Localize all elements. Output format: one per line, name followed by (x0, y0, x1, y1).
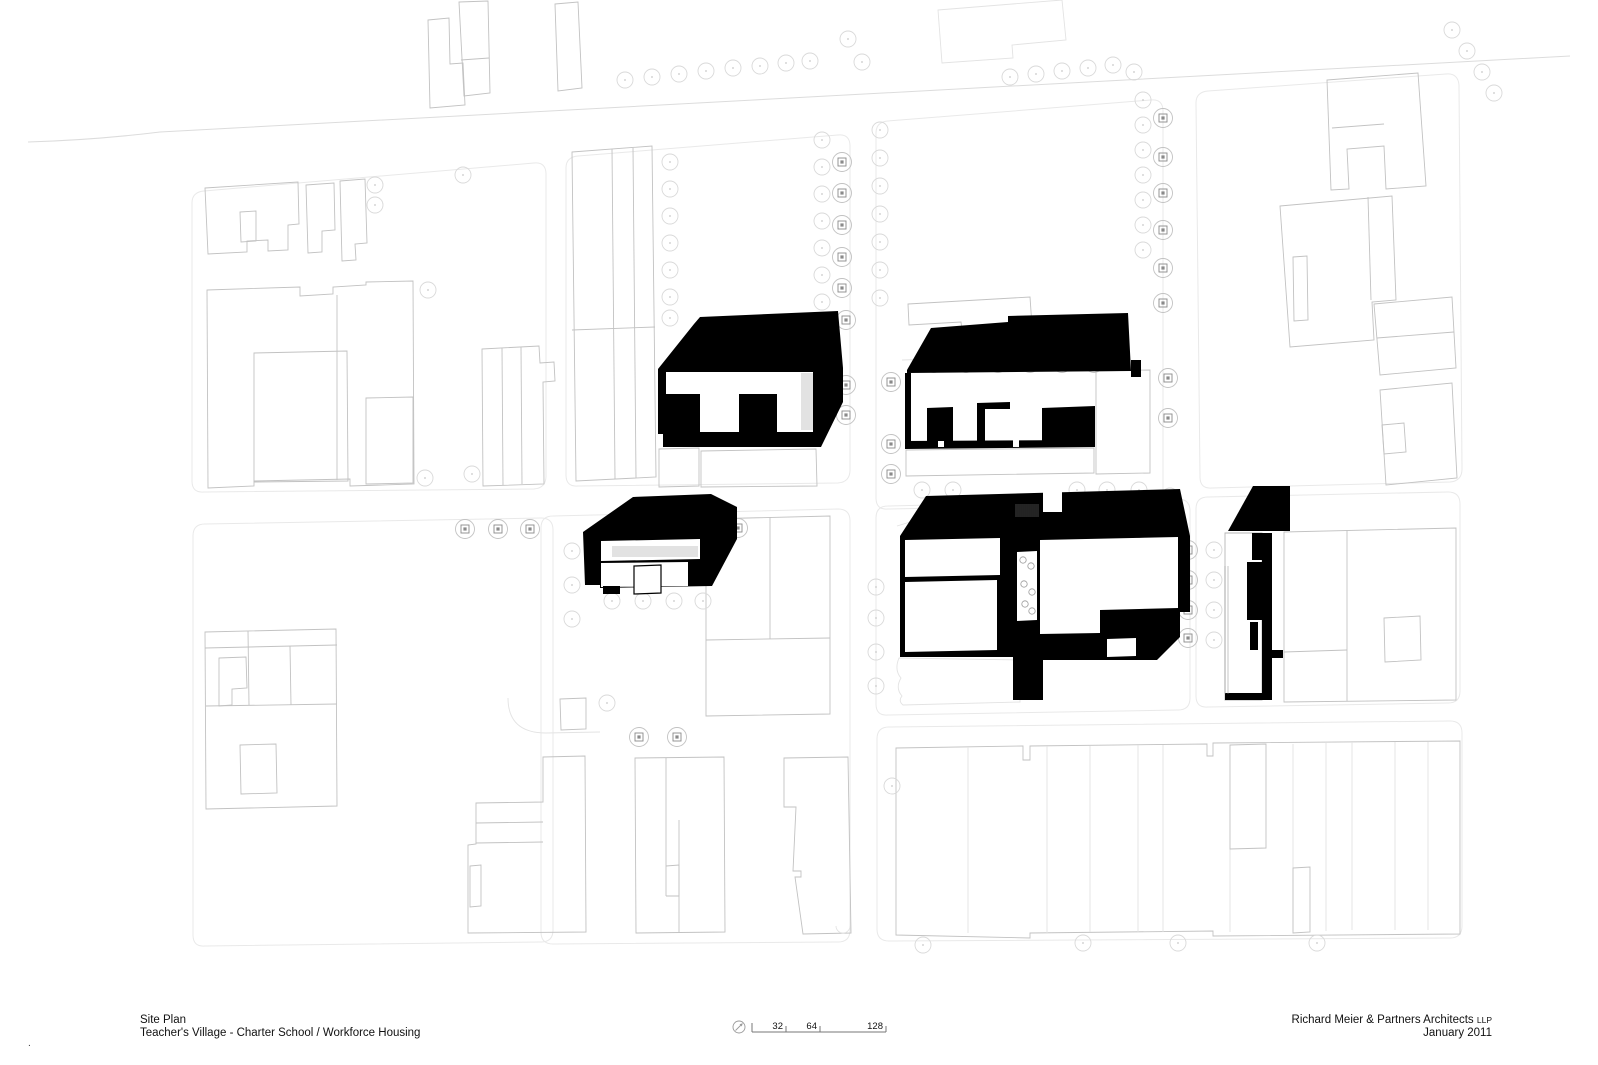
project-tree-trunk (1161, 155, 1164, 158)
title-block: Site Plan Teacher's Village - Charter Sc… (140, 1014, 420, 1040)
project-tree-trunk (844, 413, 847, 416)
street-tree-center (678, 73, 680, 75)
scale-label: 128 (867, 1021, 883, 1032)
street-tree-center (821, 193, 823, 195)
proposed-building-4 (900, 489, 1190, 700)
street-tree-center (1082, 942, 1084, 944)
project-tree-trunk (1186, 636, 1189, 639)
top-road (28, 56, 1570, 142)
project-tree-trunk (840, 160, 843, 163)
project-tree-trunk (1161, 116, 1164, 119)
context-nw-5-div2 (521, 347, 522, 484)
street-tree-center (1087, 67, 1089, 69)
street-tree-center (1316, 942, 1318, 944)
context-rowhouse-3-arc (836, 926, 850, 933)
street-tree-center (821, 139, 823, 141)
street-tree-center (879, 241, 881, 243)
street-tree-center (1142, 99, 1144, 101)
context-rowhouse-1-inner (470, 865, 481, 907)
proposed-building-5-mass (1252, 533, 1262, 560)
project-tree-trunk (1161, 228, 1164, 231)
proposed-building-2-mass (905, 440, 1095, 449)
context-ne-4 (1380, 383, 1457, 485)
proposed-building-5-mass (1250, 622, 1258, 650)
context-e-1-inner (1384, 616, 1421, 662)
project-tree-trunk (637, 735, 640, 738)
context-strips-n-div2 (633, 148, 636, 478)
context-ne-2-inner (1293, 256, 1308, 321)
context-nw-4-court (254, 351, 348, 482)
street-tree-center (891, 785, 893, 787)
project-tree-trunk (675, 735, 678, 738)
project-tree-trunk (889, 380, 892, 383)
project-tree-trunk (528, 527, 531, 530)
proposed-building-4-courtyard-tree-icon (1022, 601, 1028, 607)
street-tree-center (875, 685, 877, 687)
proposed-building-3-court (634, 565, 661, 594)
street-tree-center (374, 184, 376, 186)
street-tree-center (462, 174, 464, 176)
street-tree-center (1142, 249, 1144, 251)
context-nw-2 (306, 183, 335, 253)
street-tree-center (427, 289, 429, 291)
context-plate-b2-right (1096, 370, 1150, 474)
context-ne-3-divider (1377, 332, 1454, 338)
corner-mark: . (28, 1038, 31, 1049)
context-se-lot-lines (968, 742, 1428, 933)
street-tree-center (1213, 549, 1215, 551)
project-tree-trunk (1161, 301, 1164, 304)
context-e-1 (1284, 528, 1456, 702)
street-tree-center (1142, 174, 1144, 176)
proposed-building-4-court (1043, 489, 1062, 512)
project-tree-trunk (840, 223, 843, 226)
street-tree-center (669, 317, 671, 319)
context-w-1-inner2 (240, 744, 277, 794)
street-tree-center (571, 584, 573, 586)
street-tree-center (1009, 76, 1011, 78)
project-tree-trunk (844, 383, 847, 386)
project-tree-trunk (889, 472, 892, 475)
project-tree-trunk (1161, 266, 1164, 269)
context-rowhouse-1 (468, 756, 586, 933)
street-tree-center (821, 220, 823, 222)
street-tree-center (861, 61, 863, 63)
street-tree-center (1112, 64, 1114, 66)
street-tree-center (875, 586, 877, 588)
proposed-building-4-courtyard-tree-icon (1029, 589, 1035, 595)
city-block-se (877, 721, 1462, 941)
firm-name: Richard Meier & Partners Architects (1292, 1014, 1474, 1026)
street-tree-center (1142, 224, 1144, 226)
proposed-building-5-mass (1228, 486, 1290, 531)
street-tree-center (1142, 199, 1144, 201)
context-plate-b2-bottom (906, 448, 1094, 476)
context-plate-b1-left (659, 448, 699, 487)
street-tree-center (705, 70, 707, 72)
context-center-lot-h (706, 638, 830, 640)
context-strips-n-div1 (612, 149, 615, 479)
street-tree-center (1481, 71, 1483, 73)
street-tree-center (821, 301, 823, 303)
context-w-1 (205, 629, 337, 809)
proposed-building-4-courtyard-tree-icon (1029, 608, 1035, 614)
project-tree-trunk (463, 527, 466, 530)
context-rowhouse-3 (784, 757, 851, 934)
city-block-w (193, 518, 553, 946)
street-tree-center (821, 166, 823, 168)
project-tree-trunk (840, 255, 843, 258)
context-w-1-v2 (290, 646, 291, 705)
street-tree-center (1035, 73, 1037, 75)
context-ne-3 (1374, 297, 1456, 375)
street-tree-center (809, 60, 811, 62)
context-nw-1-court (240, 211, 256, 242)
context-strips-n (572, 146, 656, 481)
proposed-building-4-courtyard-tree-icon (1021, 581, 1027, 587)
street-tree-center (1213, 609, 1215, 611)
scale-label: 32 (772, 1021, 783, 1032)
street-tree-center (624, 79, 626, 81)
street-tree-center (879, 157, 881, 159)
firm-suffix: LLP (1477, 1015, 1492, 1025)
street-tree-center (424, 477, 426, 479)
street-tree-center (1213, 639, 1215, 641)
street-tree-center (1106, 489, 1108, 491)
proposed-building-2-court (1013, 440, 1019, 447)
street-tree-center (759, 65, 761, 67)
street-tree-center (571, 550, 573, 552)
context-plate-b1-right (701, 449, 817, 487)
drawing-subtitle: Teacher's Village - Charter School / Wor… (140, 1027, 420, 1040)
context-w-1-inner1 (219, 657, 247, 706)
street-tree-center (669, 296, 671, 298)
street-tree-center (1142, 149, 1144, 151)
context-nw-1 (205, 182, 299, 254)
context-ne-2 (1280, 196, 1396, 347)
street-tree-center (1061, 70, 1063, 72)
project-tree-trunk (840, 191, 843, 194)
proposed-building-5-mass (1247, 562, 1262, 620)
street-tree-center (669, 215, 671, 217)
scale-label: 64 (806, 1021, 817, 1032)
project-tree-trunk (1166, 376, 1169, 379)
context-se-rowhouses (896, 741, 1460, 938)
street-tree-center (952, 489, 954, 491)
proposed-building-3-mass (603, 586, 620, 594)
street-tree-center (669, 269, 671, 271)
context-tower-a (428, 18, 465, 108)
proposed-building-1 (658, 311, 843, 447)
context-rowhouse-1-h1 (476, 822, 543, 823)
street-tree-center (879, 213, 881, 215)
street-tree-center (673, 600, 675, 602)
context-w-1-h2 (206, 704, 337, 706)
street-tree-center (669, 188, 671, 190)
context-tower-a2 (459, 1, 490, 96)
street-tree-center (922, 944, 924, 946)
project-tree-trunk (840, 286, 843, 289)
proposed-building-5-mass (1225, 693, 1272, 700)
context-nw-5 (482, 346, 555, 486)
street-tree-center (1493, 92, 1495, 94)
firm-line: Richard Meier & Partners Architects LLP (1292, 1014, 1492, 1027)
project-tree-trunk (889, 442, 892, 445)
street-tree-center (1177, 942, 1179, 944)
proposed-building-2-mass (907, 313, 1131, 373)
context-e-1-h (1284, 650, 1347, 652)
proposed-building-2-mass (1042, 406, 1095, 441)
street-tree-center (374, 204, 376, 206)
proposed-building-2-mass (1131, 360, 1141, 377)
context-rowhouse-1-h2 (476, 842, 543, 843)
street-tree-center (821, 247, 823, 249)
street-tree-center (785, 62, 787, 64)
project-tree-trunk (1166, 416, 1169, 419)
street-tree-center (471, 473, 473, 475)
context-w-1-h1 (205, 645, 337, 648)
proposed-building-2-mass (977, 402, 1010, 441)
street-tree-center (1142, 124, 1144, 126)
context-se-inner-rect (1230, 744, 1266, 849)
context-center-small (560, 698, 586, 730)
street-tree-center (875, 651, 877, 653)
street-tree-center (821, 274, 823, 276)
proposed-building-4-courtyard-tree-icon (1028, 563, 1034, 569)
context-ne-2-strip (1368, 197, 1371, 300)
context-nw-5-div1 (502, 348, 503, 485)
street-tree-center (879, 269, 881, 271)
context-nw-4 (207, 281, 414, 488)
street-tree-center (1466, 50, 1468, 52)
context-lot-wavy (897, 658, 1020, 705)
site-plan-sheet: 3264128 Site Plan Teacher's Village - Ch… (0, 0, 1598, 1065)
context-w-1-v1 (248, 631, 249, 705)
street-tree-center (732, 67, 734, 69)
credits-block: Richard Meier & Partners Architects LLP … (1292, 1014, 1492, 1040)
street-tree-center (879, 129, 881, 131)
context-nw-3 (340, 179, 367, 261)
proposed-building-5-mass (1262, 533, 1272, 700)
context-tower-a2-divider (461, 58, 489, 60)
street-tree-center (1133, 71, 1135, 73)
context-se-inner-rect2 (1293, 867, 1310, 933)
context-ne-1-inner (1332, 124, 1384, 128)
proposed-building-2-mass (905, 373, 911, 448)
street-tree-center (879, 297, 881, 299)
project-tree-trunk (1161, 191, 1164, 194)
context-rowhouse-2-step (666, 865, 679, 896)
street-tree-center (606, 702, 608, 704)
street-tree-center (879, 185, 881, 187)
street-tree-center (669, 242, 671, 244)
street-tree-center (875, 617, 877, 619)
drawing-title: Site Plan (140, 1014, 420, 1027)
context-rowhouse-2 (635, 757, 725, 933)
proposed-building-2-mass (927, 407, 953, 441)
context-lot-north (938, 0, 1066, 63)
drawing-date: January 2011 (1292, 1027, 1492, 1040)
project-tree-trunk (496, 527, 499, 530)
street-tree-center (702, 600, 704, 602)
street-tree-center (921, 489, 923, 491)
context-ne-4-inner (1382, 423, 1406, 454)
site-plan-drawing: 3264128 (0, 0, 1598, 1065)
context-tower-b (555, 2, 582, 91)
street-tree-center (571, 618, 573, 620)
street-tree-center (1213, 579, 1215, 581)
proposed-building-4-courtyard-tree-icon (1020, 557, 1026, 563)
context-nw-4-inner (366, 397, 413, 484)
street-tree-center (642, 600, 644, 602)
street-tree-center (651, 76, 653, 78)
street-tree-center (1076, 489, 1078, 491)
street-tree-center (669, 161, 671, 163)
project-tree-trunk (844, 318, 847, 321)
context-ne-1 (1327, 73, 1426, 190)
city-block-nw (192, 163, 546, 492)
street-tree-center (847, 38, 849, 40)
street-tree-center (611, 600, 613, 602)
proposed-building-5-mass (1272, 650, 1283, 658)
proposed-building-2-court (938, 441, 944, 447)
street-tree-center (1451, 29, 1453, 31)
